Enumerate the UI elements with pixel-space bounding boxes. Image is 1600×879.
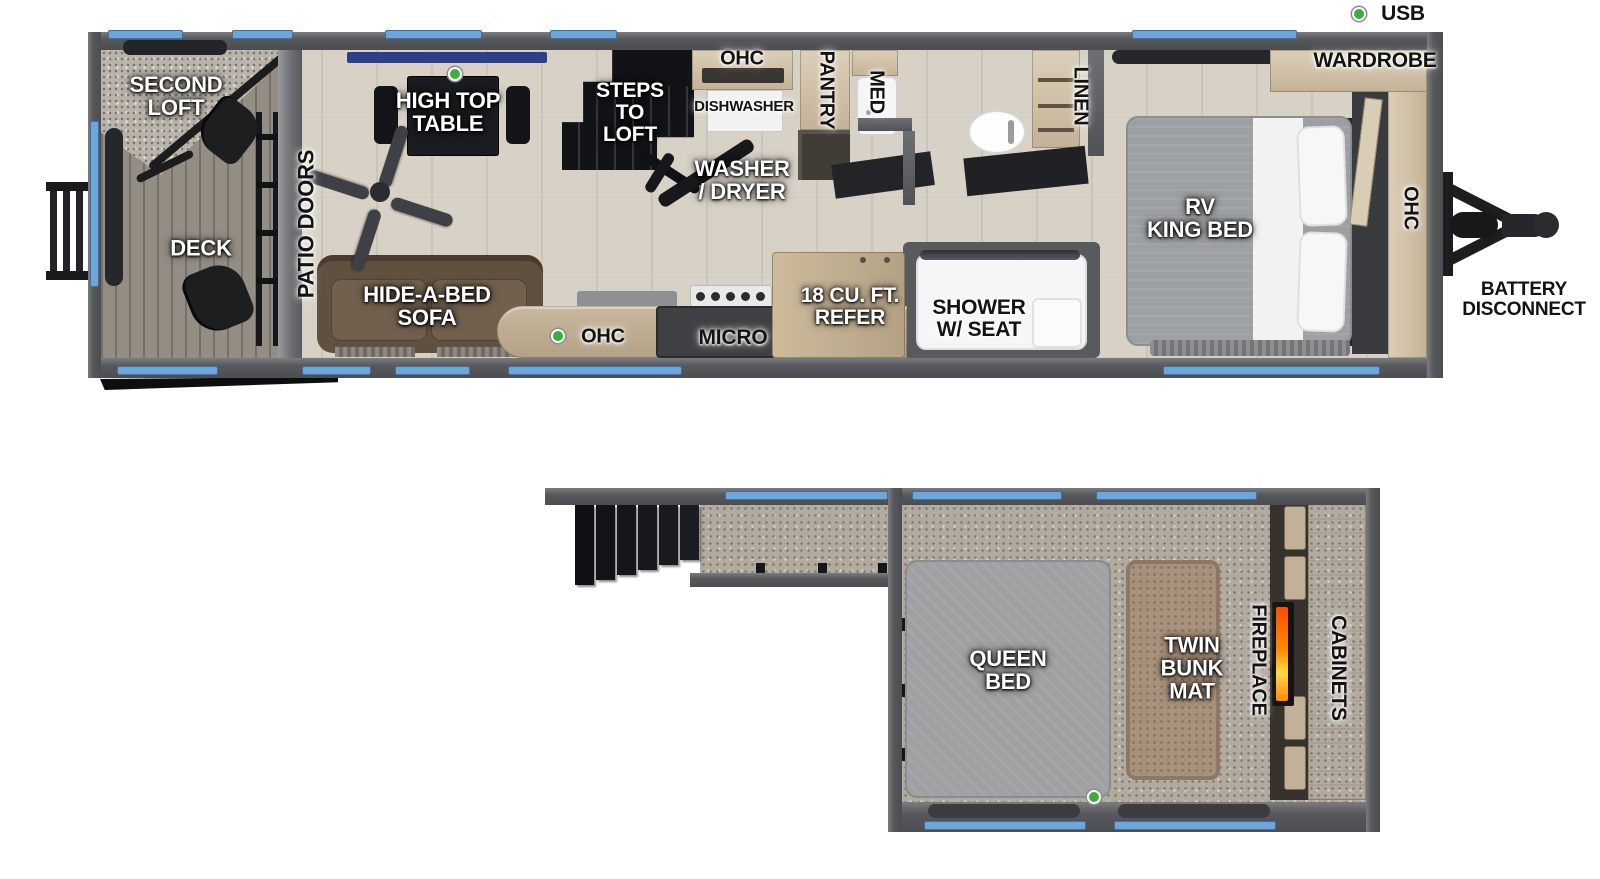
table-chair: [506, 86, 530, 144]
cabinets-label: CABINETS: [1327, 615, 1349, 721]
ladder-rung: [63, 191, 70, 271]
fireplace: [1272, 602, 1294, 706]
loft-walkway-wall: [690, 573, 902, 587]
dishwasher-label: DISHWASHER: [694, 99, 794, 115]
micro-label: MICRO: [699, 327, 768, 349]
steps-to-loft-label: STEPS TO LOFT: [596, 80, 664, 146]
bed-blanket-fold: [1253, 118, 1303, 344]
bath-wall: [903, 131, 915, 205]
loft-wall-left: [888, 488, 902, 832]
window-accent: [1114, 821, 1276, 830]
ladder-rung: [50, 191, 57, 271]
bed-pillow: [1296, 125, 1347, 227]
deck-label: DECK: [170, 236, 232, 259]
bath-wall: [858, 118, 912, 131]
usb-indicator-icon: [1087, 790, 1101, 804]
window-accent: [1096, 491, 1257, 500]
fireplace-label: FIREPLACE: [1248, 604, 1269, 716]
hitch-jack: [1450, 212, 1498, 238]
second-loft-label: SECOND LOFT: [130, 73, 223, 119]
window-accent: [912, 491, 1062, 500]
ohc-upper-label: OHC: [720, 49, 764, 70]
queen-bed-label: QUEEN BED: [969, 647, 1046, 693]
window-accent: [1163, 366, 1380, 375]
window-accent: [725, 491, 888, 500]
patio-doors-label: PATIO DOORS: [294, 150, 317, 299]
rv-floorplan-diagram: USB: [0, 0, 1600, 879]
window-accent: [302, 366, 371, 375]
deck-rail-rung: [256, 134, 279, 140]
main-wall-right: [1427, 32, 1443, 378]
usb-indicator-icon: [1352, 7, 1366, 21]
shower-label: SHOWER W/ SEAT: [932, 297, 1025, 341]
usb-indicator-icon: [448, 67, 462, 81]
hitch-ball-icon: [1533, 212, 1559, 238]
ohc-kitchen-label: OHC: [581, 327, 625, 348]
high-top-table-label: HIGH TOP TABLE: [396, 89, 500, 135]
window-accent: [395, 366, 470, 375]
toilet: [968, 110, 1026, 154]
shower-seat: [1032, 298, 1082, 348]
window-accent: [550, 30, 617, 39]
window-accent: [117, 366, 218, 375]
loft-stairs: [575, 505, 703, 587]
rv-king-bed-label: RV KING BED: [1147, 195, 1253, 241]
window-accent: [385, 30, 482, 39]
deck-rail-post: [256, 112, 262, 346]
usb-legend-label: USB: [1381, 3, 1425, 25]
window-accent: [232, 30, 293, 39]
window-recess: [1118, 804, 1270, 818]
washer-dryer-label: WASHER / DRYER: [694, 157, 789, 203]
window-valance: [347, 52, 547, 63]
pantry-label: PANTRY: [816, 51, 837, 130]
window-accent: [1132, 30, 1297, 39]
entry-step: [100, 377, 338, 390]
deck-rail-rung: [256, 230, 279, 236]
bedroom-shelf-bar: [1112, 50, 1285, 64]
door-accent: [90, 121, 99, 287]
fireplace-flame-icon: [1276, 607, 1288, 701]
wardrobe-label: WARDROBE: [1313, 50, 1436, 72]
twin-bunk-mat-label: TWIN BUNK MAT: [1161, 633, 1224, 702]
bed-pillow: [1296, 231, 1347, 333]
med-label: MED: [866, 70, 887, 114]
loft-walkway: [700, 505, 902, 573]
hide-a-bed-sofa-label: HIDE-A-BED SOFA: [363, 283, 491, 329]
battery-disconnect-label: BATTERY DISCONNECT: [1462, 280, 1586, 320]
linen-label: LINEN: [1070, 66, 1091, 125]
deck-rail-rung: [256, 182, 279, 188]
deck-door-panel: [105, 128, 123, 286]
ladder-rung: [76, 191, 83, 271]
window-recess: [928, 804, 1080, 818]
loft-wall-right: [1366, 488, 1380, 832]
deck-grill: [123, 40, 227, 55]
window-accent: [508, 366, 682, 375]
stove-cooktop: [690, 285, 772, 308]
usb-indicator-icon: [551, 329, 565, 343]
window-accent: [924, 821, 1086, 830]
ohc-bedroom-label: OHC: [1400, 186, 1421, 230]
bed-runner: [1150, 340, 1350, 356]
refer-label: 18 CU. FT. REFER: [801, 285, 899, 329]
deck-rail-rung: [256, 278, 279, 284]
window-accent: [108, 30, 183, 39]
